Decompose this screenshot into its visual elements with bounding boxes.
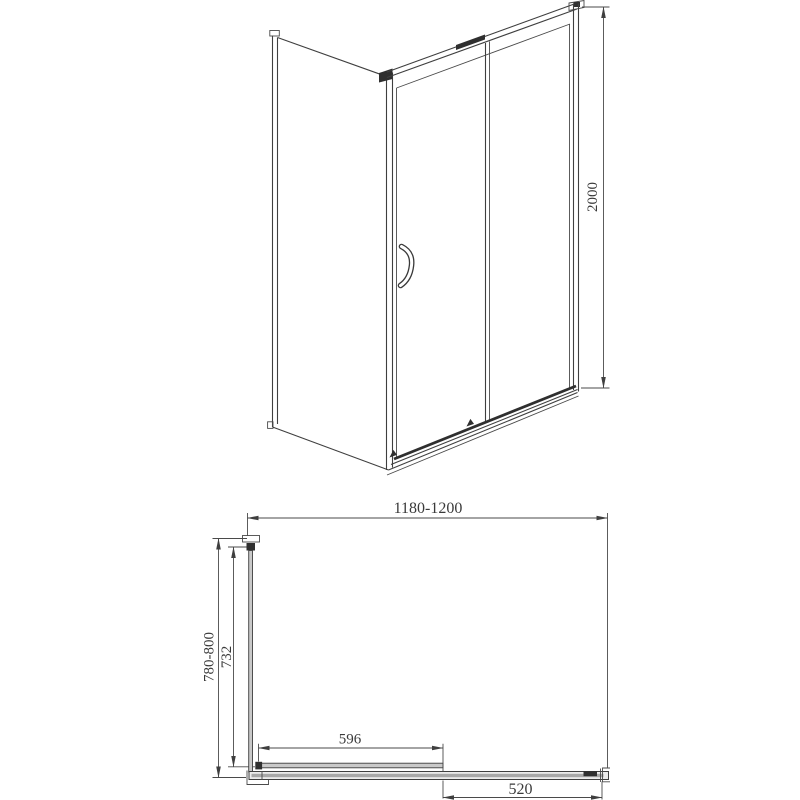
depth-range-dimension-label: 780-800 <box>201 632 217 682</box>
side-panel-top-cap <box>270 31 280 37</box>
plan-bottom-track <box>247 768 610 785</box>
dimension-width-range: 1180-1200 <box>248 500 608 768</box>
plan-sliding-door <box>255 762 443 770</box>
dimension-height: 2000 <box>581 7 610 388</box>
height-dimension-label: 2000 <box>585 182 601 212</box>
door-glass-plan <box>258 763 443 768</box>
door-panel-dimension-label: 596 <box>339 732 362 748</box>
top-plan-view: 1180-1200 780-800 732 <box>201 500 610 800</box>
glass-top-edge <box>397 24 571 88</box>
side-glass-plan <box>249 551 253 773</box>
door-end-cap <box>255 762 262 770</box>
side-panel <box>268 31 389 471</box>
right-post <box>570 4 579 392</box>
side-panel-dimension-label: 520 <box>509 781 533 798</box>
drawing-canvas: 2000 1180-1200 780-800 732 <box>0 0 800 800</box>
side-panel-top-edge <box>278 38 387 77</box>
plan-side-panel <box>243 536 260 773</box>
side-glass-dimension-label: 732 <box>219 646 235 669</box>
track-right-clamp <box>584 771 598 776</box>
door-roller-right <box>467 419 475 427</box>
drawing-sheet: 2000 1180-1200 780-800 732 <box>0 0 800 800</box>
door-roller-left <box>390 450 398 458</box>
front-left-post <box>379 69 397 471</box>
side-panel-bottom-edge <box>273 427 389 470</box>
width-range-dimension-label: 1180-1200 <box>394 500 463 517</box>
bottom-track-rail <box>387 386 579 475</box>
door-divider <box>486 42 490 422</box>
wall-profile-clamp <box>247 543 256 551</box>
dimension-side-panel: 520 <box>443 781 602 800</box>
door-handle <box>401 247 412 286</box>
front-perspective-view: 2000 <box>268 1 610 476</box>
